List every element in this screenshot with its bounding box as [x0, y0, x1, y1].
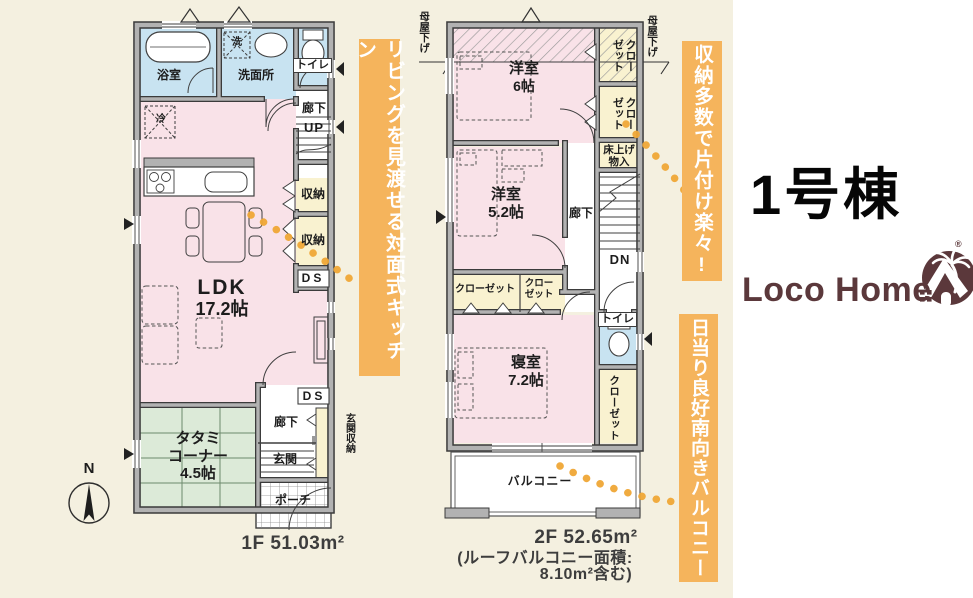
closet-b-line2: ゼット — [518, 289, 560, 300]
logo-wordmark: Loco Home — [742, 271, 932, 310]
room-label-washroom: 洗面所 — [219, 68, 293, 82]
entrance-storage-label: 玄関収納 — [343, 404, 355, 462]
stairs-dn-label: DN — [602, 252, 638, 267]
flyer-floorplan: 浴室 洗面所 洗 冷 トイレ 廊下 UP 収納 収納 DS LDK 17.2帖 … — [0, 0, 973, 598]
closet-mid-label: クローゼット — [602, 94, 636, 132]
floor-storage-line2: 物入 — [596, 156, 642, 168]
bedroom-name: 寝室 — [494, 354, 558, 372]
tatami-line1: タタミ — [150, 430, 246, 448]
closet-right-label: クローゼット — [608, 374, 620, 442]
closet-top-label: クローゼット — [602, 36, 636, 74]
west52-size: 5.2帖 — [474, 204, 538, 222]
room-label-west52: 洋室 5.2帖 — [474, 186, 538, 221]
tatami-size: 4.5帖 — [150, 465, 246, 483]
compass — [69, 483, 109, 523]
room-label-toilet-f2: トイレ — [598, 312, 637, 327]
eaves-label-left: 母屋下げ — [418, 6, 430, 58]
fridge-label: 冷 — [150, 114, 172, 126]
floor1-area-label: 1F 51.03m² — [238, 533, 348, 555]
tatami-line2: コーナー — [150, 448, 246, 466]
banner-storage: 収納多数で片付け楽々! — [682, 41, 722, 281]
room-label-toilet-f1: トイレ — [293, 58, 332, 73]
closet-a-label: クローゼット — [450, 284, 520, 296]
west52-name: 洋室 — [474, 186, 538, 204]
vanity-sink-icon — [255, 33, 287, 57]
compass-north-label: N — [78, 460, 100, 478]
logo-registered-mark: ® — [955, 239, 962, 249]
room-label-west6: 洋室 6帖 — [496, 60, 552, 94]
west6-size: 6帖 — [496, 78, 552, 95]
room-label-hall-upper: 廊下 — [295, 101, 333, 115]
bedroom-size: 7.2帖 — [494, 372, 558, 390]
room-label-bedroom: 寝室 7.2帖 — [494, 354, 558, 389]
closet-b-line1: クロー — [518, 278, 560, 289]
floor-storage-line1: 床上げ — [596, 144, 642, 156]
room-size-ldk: 17.2帖 — [186, 299, 258, 320]
room-label-storage-a: 収納 — [294, 187, 332, 201]
floor-storage-label: 床上げ 物入 — [596, 144, 642, 169]
floor2-area-label: 2F 52.65m² — [528, 527, 644, 549]
closet-b-label: クロー ゼット — [518, 278, 560, 300]
duct-label-upper: DS — [294, 271, 332, 285]
room-label-porch: ポーチ — [260, 493, 326, 507]
room-label-ldk: LDK — [190, 276, 254, 301]
building-title: 1号棟 — [750, 150, 902, 231]
kitchen-counter-icon — [144, 158, 254, 196]
duct-label-lower: DS — [296, 389, 332, 403]
west6-name: 洋室 — [496, 60, 552, 78]
room-label-storage-b: 収納 — [294, 233, 332, 247]
room-label-hall-f2: 廊下 — [561, 206, 601, 220]
bathtub-icon — [146, 32, 210, 62]
room-label-bath: 浴室 — [144, 68, 194, 82]
room-label-tatami: タタミ コーナー 4.5帖 — [150, 430, 246, 483]
roof-balcony-note-2: 8.10m²含む) — [524, 566, 648, 585]
eaves-label-right: 母屋下げ — [646, 10, 658, 62]
room-label-balcony: バルコニー — [500, 474, 580, 488]
room-label-hall-lower: 廊下 — [258, 415, 314, 429]
room-label-entrance: 玄関 — [256, 452, 314, 466]
banner-balcony: 日当り良好南向きバルコニー — [679, 314, 718, 582]
compass-needle-icon — [84, 484, 95, 521]
washer-label: 洗 — [226, 37, 248, 49]
stairs-up-label: UP — [297, 120, 331, 135]
banner-kitchen: リビングを見渡せる対面式キッチン — [359, 39, 400, 376]
